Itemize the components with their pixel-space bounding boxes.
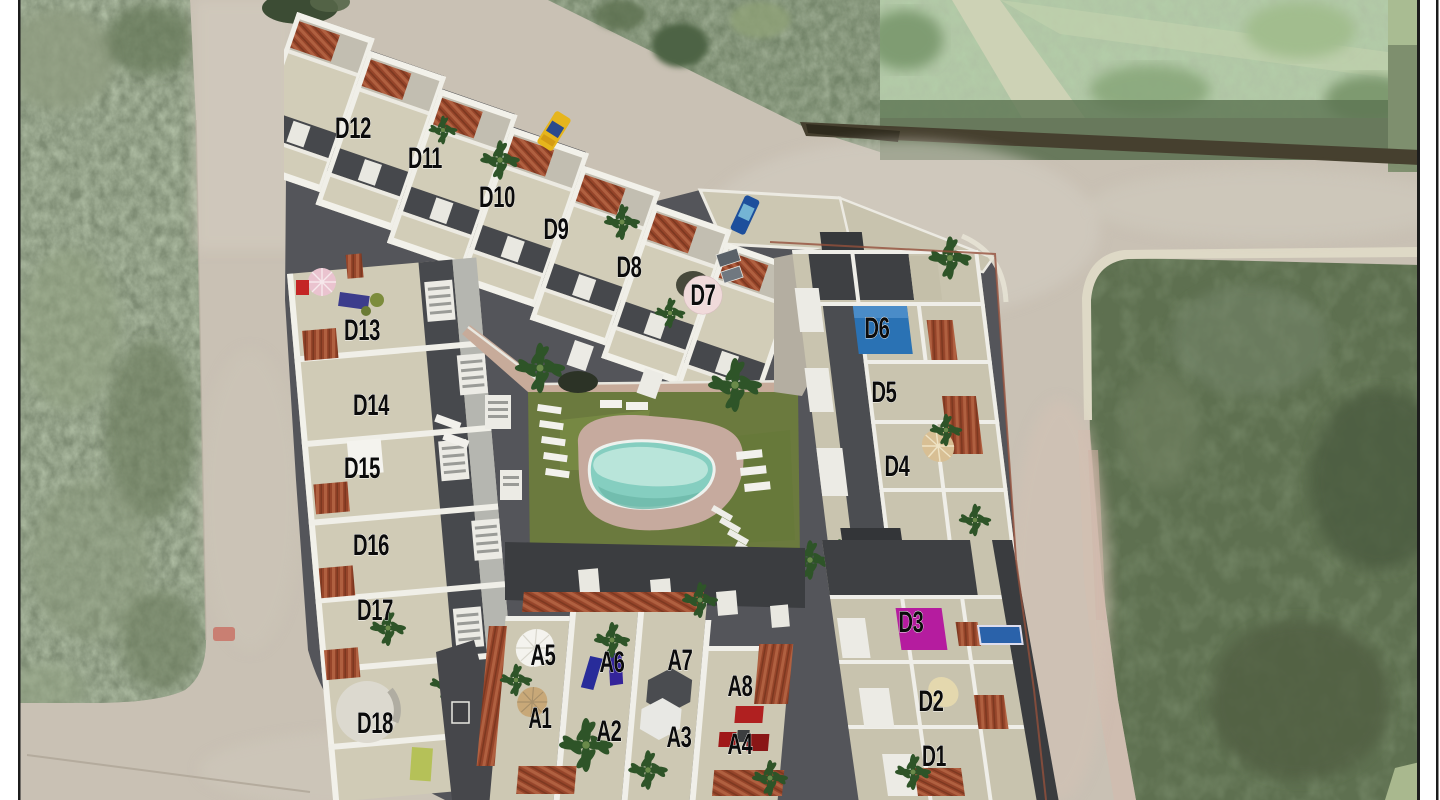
svg-text:D8: D8: [617, 251, 642, 284]
svg-text:D16: D16: [353, 529, 389, 562]
svg-text:D17: D17: [357, 594, 393, 627]
svg-text:D1: D1: [922, 740, 946, 773]
svg-text:D4: D4: [885, 450, 911, 483]
svg-text:A7: A7: [668, 644, 693, 677]
svg-text:D7: D7: [691, 279, 716, 312]
svg-text:D12: D12: [335, 112, 371, 145]
svg-text:A3: A3: [667, 721, 692, 754]
svg-text:D11: D11: [408, 142, 442, 175]
svg-text:A5: A5: [531, 639, 556, 672]
svg-text:D15: D15: [344, 452, 380, 485]
svg-text:D18: D18: [357, 707, 393, 740]
svg-text:A8: A8: [728, 670, 753, 703]
svg-text:A6: A6: [600, 646, 625, 679]
svg-text:A1: A1: [529, 702, 552, 735]
svg-text:A2: A2: [597, 715, 622, 748]
svg-text:D5: D5: [872, 376, 897, 409]
svg-text:D3: D3: [899, 606, 924, 639]
svg-text:D6: D6: [865, 312, 890, 345]
svg-text:A4: A4: [728, 728, 754, 761]
svg-text:D9: D9: [544, 213, 569, 246]
svg-text:D2: D2: [919, 685, 944, 718]
svg-text:D10: D10: [479, 181, 515, 214]
svg-text:D13: D13: [344, 314, 380, 347]
svg-text:D14: D14: [353, 389, 390, 422]
